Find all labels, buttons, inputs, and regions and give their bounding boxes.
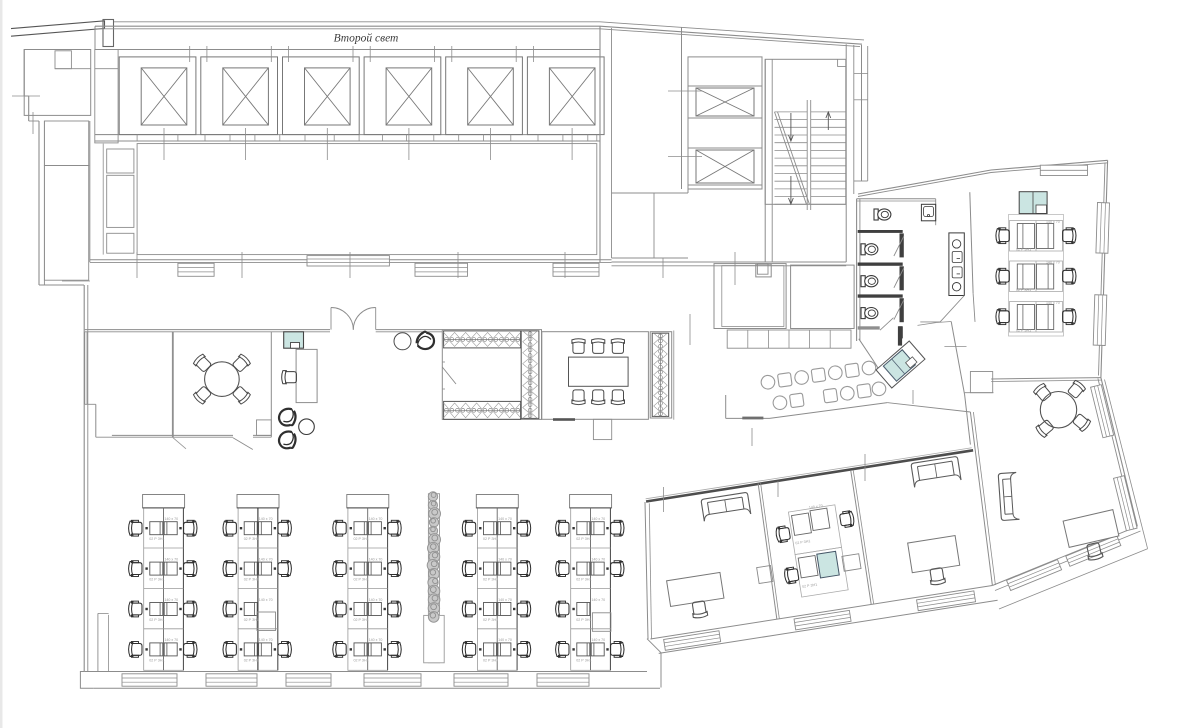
svg-text:140 x 70: 140 x 70 [259,517,273,521]
svg-text:02 Р ЗН1: 02 Р ЗН1 [483,618,498,622]
svg-text:02 Р ЗН1: 02 Р ЗН1 [483,658,498,662]
svg-text:02 Р ЗН1: 02 Р ЗН1 [576,658,591,662]
svg-text:02 Р ЗН1: 02 Р ЗН1 [1016,248,1031,252]
svg-text:140 x 70: 140 x 70 [369,638,383,642]
svg-text:140 x 70: 140 x 70 [369,517,383,521]
svg-text:02 Р ЗН1: 02 Р ЗН1 [354,658,369,662]
svg-text:02 Р ЗН1: 02 Р ЗН1 [354,537,369,541]
svg-text:140 x 70: 140 x 70 [369,598,383,602]
svg-text:02 Р ЗН1: 02 Р ЗН1 [576,618,591,622]
svg-text:140 x 70: 140 x 70 [591,517,605,521]
svg-text:140 x 70: 140 x 70 [1046,301,1060,305]
svg-text:140 x 70: 140 x 70 [259,598,273,602]
svg-text:Второй свет: Второй свет [334,32,399,45]
svg-text:140 x 70: 140 x 70 [259,638,273,642]
svg-text:02 Р ЗН1: 02 Р ЗН1 [1016,288,1031,292]
svg-text:02 Р ЗН1: 02 Р ЗН1 [244,578,259,582]
svg-text:02 Р ЗН1: 02 Р ЗН1 [576,578,591,582]
svg-text:140 x 70: 140 x 70 [591,598,605,602]
svg-text:02 Р ЗН1: 02 Р ЗН1 [149,537,164,541]
svg-text:140 x 70: 140 x 70 [498,517,512,521]
svg-text:02 Р ЗН1: 02 Р ЗН1 [354,618,369,622]
svg-text:140 x 70: 140 x 70 [164,638,178,642]
svg-text:140 x 70: 140 x 70 [1046,261,1060,265]
svg-text:02 Р ЗН1: 02 Р ЗН1 [483,578,498,582]
svg-text:02 Р ЗН1: 02 Р ЗН1 [483,537,498,541]
svg-text:140 x 70: 140 x 70 [369,557,383,561]
svg-text:140 x 70: 140 x 70 [259,557,273,561]
svg-text:02 Р ЗН1: 02 Р ЗН1 [354,578,369,582]
svg-text:140 x 70: 140 x 70 [498,598,512,602]
svg-text:140 x 70: 140 x 70 [1046,220,1060,224]
svg-text:140 x 70: 140 x 70 [164,598,178,602]
svg-text:02 Р ЗН1: 02 Р ЗН1 [244,537,259,541]
svg-text:140 x 70: 140 x 70 [164,517,178,521]
svg-text:02 Р ЗН1: 02 Р ЗН1 [244,658,259,662]
svg-text:02 Р ЗН1: 02 Р ЗН1 [149,578,164,582]
svg-text:02 Р ЗН1: 02 Р ЗН1 [576,537,591,541]
svg-text:140 x 70: 140 x 70 [498,638,512,642]
svg-text:140 x 70: 140 x 70 [498,557,512,561]
svg-text:02 Р ЗН1: 02 Р ЗН1 [149,658,164,662]
svg-text:02 Р ЗН1: 02 Р ЗН1 [1016,329,1031,333]
svg-text:140 x 70: 140 x 70 [591,638,605,642]
svg-text:140 x 70: 140 x 70 [591,557,605,561]
svg-text:140 x 70: 140 x 70 [164,557,178,561]
svg-text:02 Р ЗН1: 02 Р ЗН1 [149,618,164,622]
